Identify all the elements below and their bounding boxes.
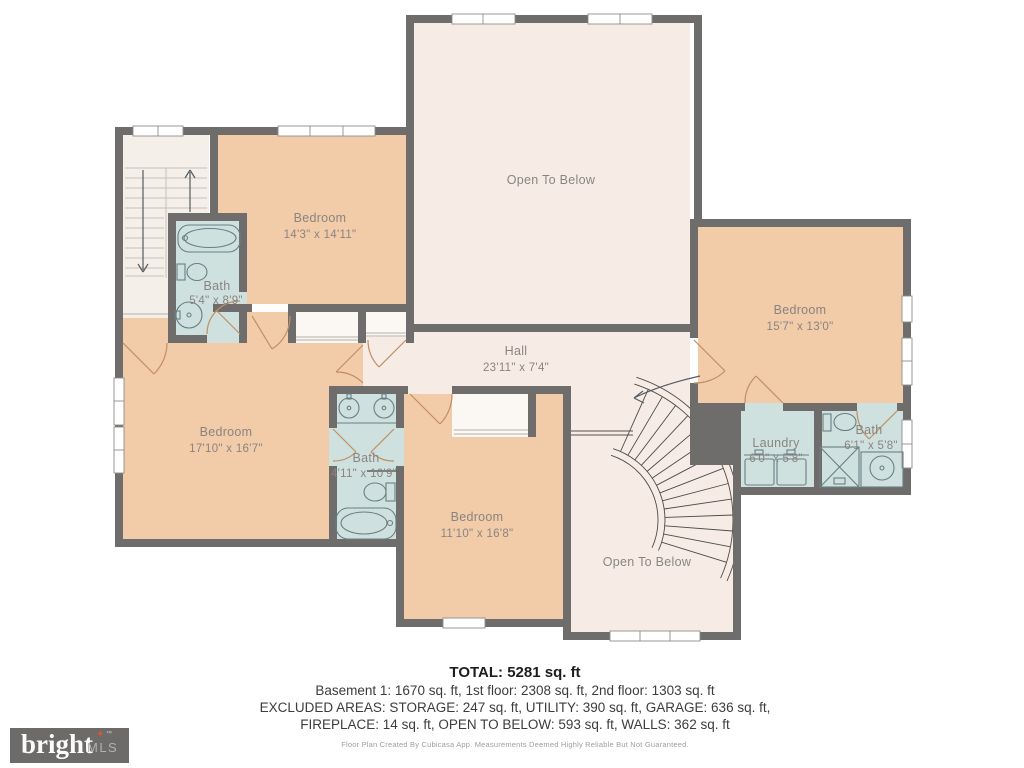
- svg-text:14'3" x 14'11": 14'3" x 14'11": [284, 229, 357, 241]
- floor-plan-page: Open To Below Bedroom 14'3" x 14'11" Bat…: [0, 0, 1024, 768]
- logo-trademark: ™: [106, 731, 112, 737]
- floor-plan-drawing: Open To Below Bedroom 14'3" x 14'11" Bat…: [0, 0, 1024, 768]
- label-bath-middle: Bath: [353, 451, 380, 465]
- area-summary: TOTAL: 5281 sq. ft Basement 1: 1670 sq. …: [0, 664, 1024, 749]
- svg-text:23'11" x 7'4": 23'11" x 7'4": [483, 362, 549, 374]
- bright-mls-logo: bright ✦ ™ MLS: [10, 728, 129, 763]
- disclaimer: Floor Plan Created By Cubicasa App. Meas…: [0, 740, 1024, 749]
- svg-text:6'1" x 5'8": 6'1" x 5'8": [844, 440, 898, 452]
- svg-text:4'11" x 10'9": 4'11" x 10'9": [331, 468, 397, 480]
- label-open-below-bottom: Open To Below: [603, 555, 692, 569]
- svg-text:5'4" x 8'9": 5'4" x 8'9": [189, 295, 243, 307]
- label-bedroom-left: Bedroom: [200, 425, 253, 439]
- svg-text:6'0" x 5'8": 6'0" x 5'8": [749, 453, 803, 465]
- label-bath-top-left: Bath: [204, 279, 231, 293]
- label-open-below-top: Open To Below: [507, 173, 596, 187]
- svg-text:17'10" x 16'7": 17'10" x 16'7": [189, 443, 263, 455]
- label-bedroom-bottom: Bedroom: [451, 510, 504, 524]
- logo-star-icon: ✦: [96, 729, 104, 740]
- floor-areas: Basement 1: 1670 sq. ft, 1st floor: 2308…: [0, 682, 1024, 699]
- logo-brand-text: bright: [21, 729, 93, 760]
- excluded-areas-2: FIREPLACE: 14 sq. ft, OPEN TO BELOW: 593…: [0, 716, 1024, 733]
- total-area: TOTAL: 5281 sq. ft: [0, 664, 1024, 682]
- svg-text:11'10" x 16'8": 11'10" x 16'8": [441, 528, 514, 540]
- excluded-areas-1: EXCLUDED AREAS: STORAGE: 247 sq. ft, UTI…: [0, 699, 1024, 716]
- logo-suffix-text: MLS: [87, 740, 118, 755]
- label-laundry: Laundry: [752, 436, 800, 450]
- label-hall: Hall: [505, 344, 528, 358]
- label-bedroom-right: Bedroom: [774, 303, 827, 317]
- label-bath-right: Bath: [856, 423, 883, 437]
- label-bedroom-top: Bedroom: [294, 211, 347, 225]
- svg-text:15'7" x 13'0": 15'7" x 13'0": [767, 321, 834, 333]
